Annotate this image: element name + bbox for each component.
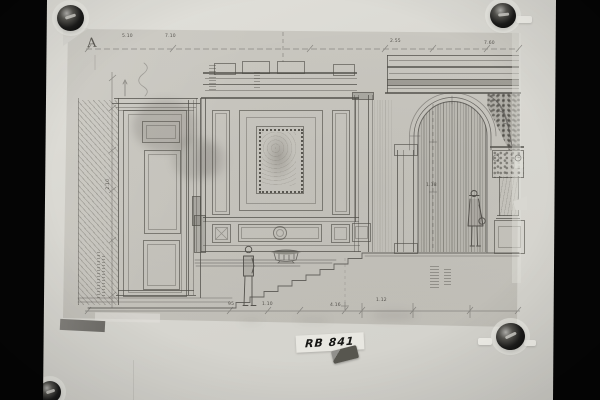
ledge-lines <box>195 260 336 266</box>
dim-text: 1.18 <box>426 184 437 189</box>
arch-archivolt <box>414 98 491 156</box>
staircase-outline <box>88 253 519 308</box>
door-finial <box>123 80 127 96</box>
dim-text: 2.55 <box>390 40 401 45</box>
tape-strip <box>60 319 106 332</box>
dimension-cross <box>341 302 349 310</box>
capital-volute <box>515 155 521 161</box>
dim-text: 1.10 <box>262 303 273 308</box>
archival-photo-of-architectural-drawing: A 5.10 7.10 2.55 7.60 2.10 95 1.10 4.16 … <box>0 0 600 400</box>
dim-text: 4.16 <box>330 304 341 309</box>
marker-letter-a: A <box>87 37 97 50</box>
pin-tab <box>516 16 532 23</box>
pin-tab <box>524 340 536 346</box>
man-figure-fill <box>244 256 254 276</box>
dimension-ticks <box>85 45 522 52</box>
floor-lines <box>78 298 232 302</box>
push-pin-top-left <box>57 5 84 31</box>
dim-text: 7.60 <box>484 42 495 47</box>
capital-volute <box>493 155 499 161</box>
pin-tab <box>478 338 492 345</box>
spandrel-arcs <box>489 96 512 146</box>
dim-text: 5.10 <box>122 35 133 40</box>
pencil-scribble <box>139 63 148 96</box>
man-figure-head <box>245 246 251 252</box>
dim-text: 2.10 <box>107 179 112 190</box>
photo-border-left <box>0 0 47 400</box>
woman-figure-fill <box>468 199 483 226</box>
dado-cross <box>216 228 227 239</box>
photo-border-right <box>553 0 600 400</box>
dim-text: 1.12 <box>376 299 387 304</box>
dim-text: 7.10 <box>165 35 176 40</box>
extension-line <box>362 303 470 318</box>
dim-text: 95 <box>228 303 234 308</box>
